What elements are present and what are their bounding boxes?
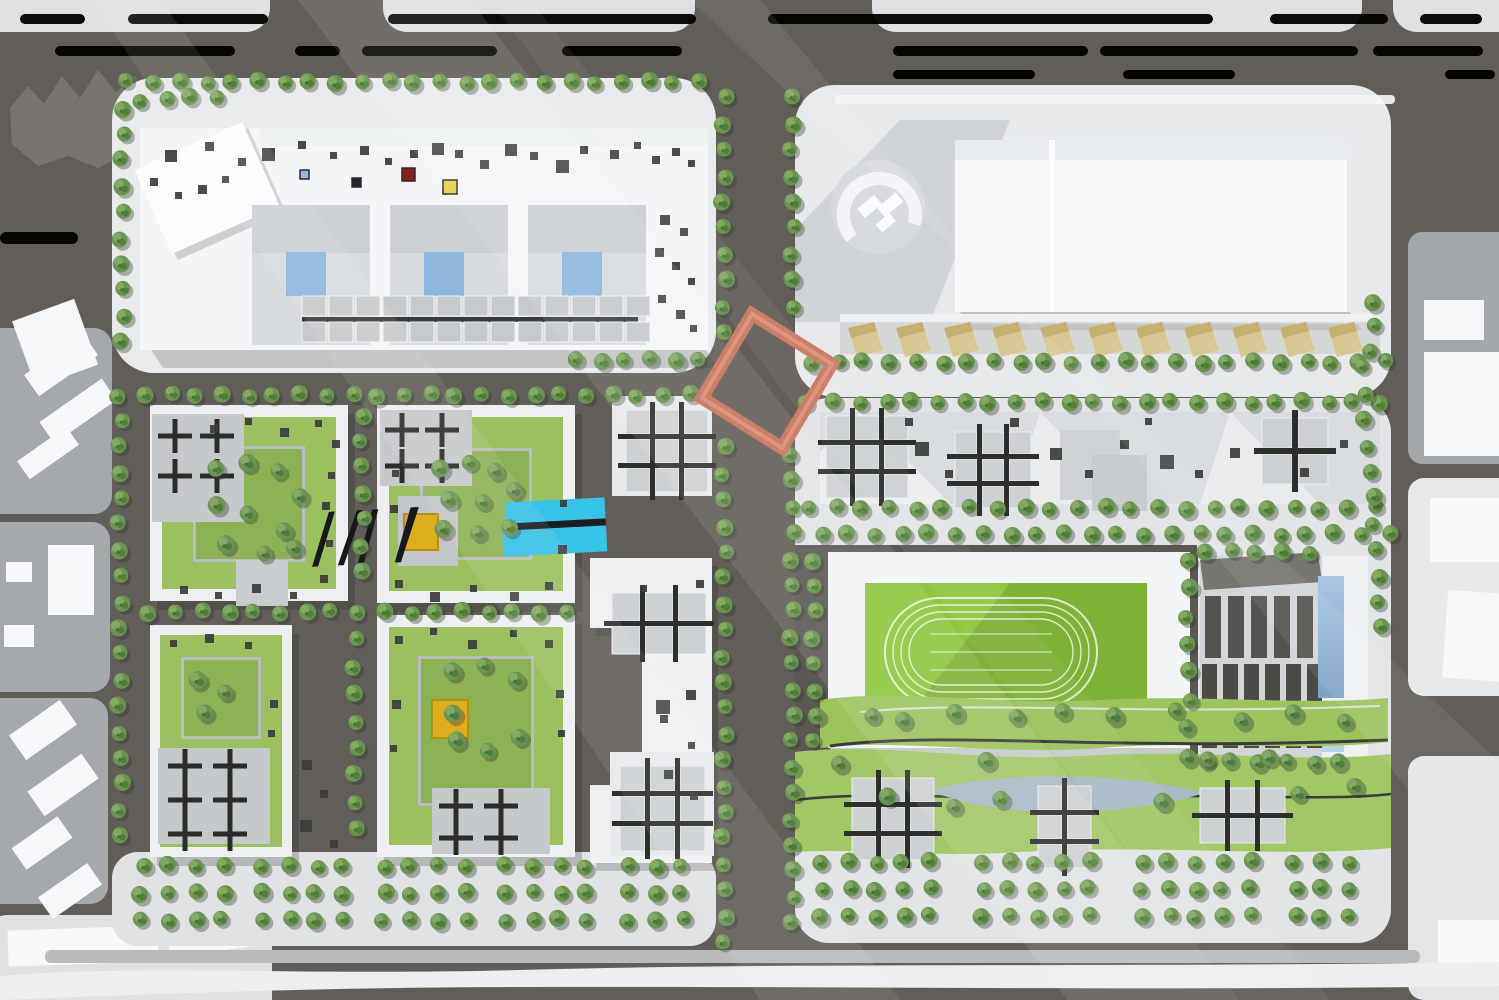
roof-dot	[175, 192, 182, 199]
lane-marking	[1270, 14, 1388, 24]
roof-dot	[1340, 440, 1348, 448]
roof-split-joint	[1049, 140, 1055, 312]
grid-roof-cluster	[947, 424, 1039, 516]
lane-marking	[768, 14, 1213, 24]
parking-unit	[437, 322, 461, 342]
roof-dot	[328, 472, 335, 479]
residential-block-c	[150, 625, 299, 866]
cross-line-v	[876, 770, 881, 868]
playground-yellow	[432, 700, 468, 738]
roof-dot	[245, 418, 252, 425]
roof-cell	[881, 836, 905, 860]
roof-dot	[945, 470, 953, 478]
roof-edge-strip	[955, 140, 1347, 160]
roof-cell	[910, 836, 934, 860]
context-building	[4, 625, 34, 647]
roof-dot	[1230, 448, 1240, 458]
parking-unit	[518, 322, 542, 342]
roof-cell	[1230, 818, 1255, 843]
roof-cell	[1298, 418, 1328, 448]
roof-dot	[198, 185, 207, 194]
accent-roof-dot	[402, 168, 415, 181]
perimeter-path	[835, 95, 1395, 104]
context-blocks-east	[1408, 232, 1499, 1000]
roof-dot	[150, 178, 158, 186]
site-plan-rendering	[0, 0, 1499, 1000]
grid-roof-cluster	[1254, 410, 1336, 492]
roof-cell	[982, 459, 1004, 481]
roof-dot	[430, 628, 437, 635]
lane-marking	[1373, 46, 1483, 56]
roof-dot	[170, 640, 177, 647]
roof-dot	[322, 502, 330, 510]
context-building	[6, 562, 32, 582]
roof-dot	[315, 420, 322, 427]
roof-cell	[955, 486, 977, 508]
roof-dot	[392, 470, 399, 477]
roof-cell	[1200, 788, 1225, 813]
warehouse-roof	[955, 140, 1347, 312]
cross-line-v	[1004, 424, 1009, 516]
lane-marking	[20, 14, 85, 24]
roof-dot	[558, 730, 565, 737]
roof-dot	[686, 690, 696, 700]
roof-dot	[330, 152, 337, 159]
roof-dot	[210, 425, 218, 433]
roof-cell	[626, 468, 650, 492]
roof-dot	[360, 146, 369, 155]
roof-cell	[620, 826, 645, 851]
roof-dot	[280, 428, 289, 437]
roof-dot	[165, 150, 177, 162]
roof-dot	[390, 505, 398, 513]
cross-line-h	[947, 454, 1039, 459]
cross-line-h	[844, 831, 942, 836]
roof-dot	[395, 636, 403, 644]
roof-dot	[270, 700, 278, 708]
roof-cell	[645, 593, 673, 621]
cross-line-h	[1192, 813, 1293, 818]
roof-cell	[852, 836, 876, 860]
roof-dot	[688, 278, 695, 285]
mid-building	[1092, 455, 1147, 511]
panel-stripe	[1228, 596, 1244, 658]
roof-dot	[640, 585, 647, 592]
cross-line-h	[947, 481, 1039, 486]
masterplan-canvas	[0, 0, 1499, 1000]
roof-dot	[215, 592, 222, 599]
roof-cell	[1262, 418, 1292, 448]
roof-dot	[302, 760, 312, 770]
roof-dot	[320, 790, 328, 798]
lane-marking	[893, 70, 1035, 79]
lane-marking	[1123, 70, 1235, 79]
roof-dot	[915, 442, 929, 456]
roof-cell	[852, 778, 876, 802]
roof-cell	[1262, 454, 1292, 484]
lane-marking	[1100, 46, 1358, 56]
parking-unit	[491, 296, 515, 316]
roof-cell	[645, 626, 673, 654]
panel-stripe	[1205, 596, 1221, 658]
roof-dot	[300, 820, 312, 832]
skylight-blue	[424, 252, 464, 296]
roof-dot	[470, 585, 477, 592]
roof-cell	[982, 486, 1004, 508]
roof-dot	[180, 586, 188, 594]
roof-cell	[1009, 486, 1031, 508]
cross-line-v	[977, 424, 982, 516]
lane-marking	[1445, 70, 1495, 79]
roof-dot	[326, 540, 333, 547]
roof-cell	[678, 593, 706, 621]
roof-dot	[268, 730, 275, 737]
roof-cell	[1230, 788, 1255, 813]
lane-marking	[1420, 14, 1482, 24]
entrance-building	[236, 560, 288, 606]
lane-marking	[562, 46, 682, 56]
context-building	[1424, 300, 1484, 340]
roof-dot	[385, 158, 392, 165]
roof-dot	[905, 418, 913, 426]
skylight-wing-pad	[432, 788, 550, 854]
parking-unit	[491, 322, 515, 342]
cross-line-h	[1254, 448, 1336, 454]
roof-dot	[696, 580, 704, 588]
roof-dot	[298, 141, 306, 149]
courtyard-lawn	[184, 660, 258, 736]
context-building	[1424, 352, 1499, 456]
roof-dot	[1010, 418, 1019, 427]
roof-cell	[1009, 459, 1031, 481]
roof-cell	[678, 626, 706, 654]
roof-dot	[1050, 448, 1062, 460]
roof-cell	[884, 416, 908, 440]
parking-unit	[437, 296, 461, 316]
roof-dot	[672, 148, 680, 156]
roof-dot	[245, 642, 252, 649]
lane-marking	[295, 46, 340, 56]
context-building	[48, 545, 94, 615]
roof-dot	[1085, 470, 1093, 478]
roof-cell	[955, 432, 977, 454]
parking-unit	[410, 322, 434, 342]
parking-unit	[464, 322, 488, 342]
skylight-wing-pad	[158, 748, 270, 844]
roof-dot	[430, 592, 440, 602]
roof-cell	[1260, 818, 1285, 843]
roof-cell	[982, 432, 1004, 454]
roof-dot	[392, 700, 401, 709]
roof-dot	[688, 160, 695, 167]
roof-cell	[1009, 432, 1031, 454]
roof-dot	[1300, 468, 1309, 477]
roof-dot	[252, 584, 261, 593]
roof-cell	[1260, 788, 1285, 813]
roof-cell	[1200, 818, 1225, 843]
context-building	[1430, 498, 1499, 562]
context-building	[1442, 590, 1499, 682]
roof-cell	[955, 459, 977, 481]
lane-marking	[893, 46, 1088, 56]
parking-unit	[464, 296, 488, 316]
roof-dot	[205, 634, 214, 643]
roof-dot	[468, 640, 477, 649]
accent-roof-dot	[352, 178, 361, 187]
roof-dot	[330, 840, 338, 848]
roof-dot	[560, 500, 567, 507]
roof-dot	[390, 745, 397, 752]
roof-dot	[1145, 418, 1152, 425]
roof-dot	[332, 440, 340, 448]
roof-cell	[881, 807, 905, 831]
roof-dot	[395, 580, 403, 588]
roof-dot	[320, 575, 328, 583]
parking-unit	[410, 296, 434, 316]
skylight-wing-pad	[152, 414, 244, 522]
roof-dot	[290, 592, 297, 599]
lane-marking	[0, 232, 78, 244]
accent-roof-dot	[300, 170, 309, 179]
grid-roof-cluster	[1192, 780, 1293, 851]
roof-cell	[852, 807, 876, 831]
